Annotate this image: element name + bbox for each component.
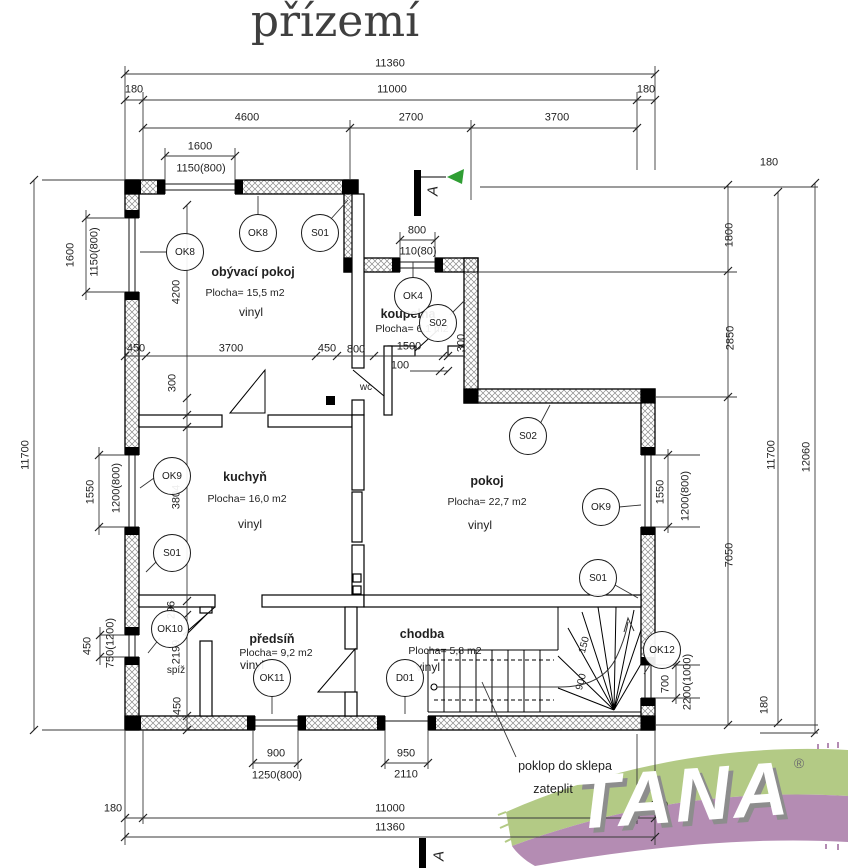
note-insulate: zateplit xyxy=(533,783,573,796)
dim-right-seg2: 2850 xyxy=(726,326,737,350)
section-arrow-icon xyxy=(447,169,464,184)
bubble-ok9-left: OK9 xyxy=(153,457,191,495)
bubble-ok10: OK10 xyxy=(151,610,189,648)
dim-top-main: 11000 xyxy=(377,85,407,96)
dim-left-total: 11700 xyxy=(21,440,32,470)
dim-left-win2: 1550 xyxy=(86,480,97,504)
room-pokoj-area: Plocha= 22,7 m2 xyxy=(447,497,526,508)
dim-left-win2b: 1200(800) xyxy=(112,463,123,513)
bubble-ok8-left: OK8 xyxy=(166,233,204,271)
dim-bottom-off-left: 180 xyxy=(104,804,122,815)
page-title: přízemí xyxy=(251,0,419,44)
dim-left-win1: 1600 xyxy=(66,243,77,267)
dim-bottom-win1: 900 xyxy=(267,749,285,760)
dim-right-seg1: 1800 xyxy=(725,223,736,247)
room-wc-name: wc xyxy=(360,383,372,393)
dim-right-win2: 700 xyxy=(661,675,672,693)
room-pokoj-floor: vinyl xyxy=(468,519,492,531)
dim-top-seg2: 2700 xyxy=(399,113,423,124)
bubble-ok11: OK11 xyxy=(253,659,291,697)
dim-right-seg3: 7050 xyxy=(725,543,736,567)
dim-living-w2: 3700 xyxy=(219,344,243,355)
bubble-s01-living: S01 xyxy=(301,214,339,252)
dim-top-win: 1600 xyxy=(188,142,212,153)
registered-mark-icon: ® xyxy=(794,755,804,771)
dim-bottom-total: 11360 xyxy=(375,823,405,834)
dim-bath-win: 800 xyxy=(408,226,426,237)
dim-right-total: 11700 xyxy=(767,440,778,470)
room-kuchyn-floor: vinyl xyxy=(238,518,262,530)
room-obyvaci-area: Plocha= 15,5 m2 xyxy=(205,288,284,299)
room-obyvaci-name: obývací pokoj xyxy=(211,266,294,279)
dim-living-w3: 450 xyxy=(318,344,336,355)
dim-bottom-main: 11000 xyxy=(375,804,405,815)
room-ob yvaci-floor: vinyl xyxy=(239,306,263,318)
dim-left-win3b: 750(1200) xyxy=(106,618,117,668)
bubble-d01: D01 xyxy=(386,659,424,697)
dim-living-w1: 450 xyxy=(127,344,145,355)
dim-bath-100: 100 xyxy=(391,361,409,372)
dim-left-win1b: 1150(800) xyxy=(90,227,101,276)
room-spiz-name: spíž xyxy=(167,666,185,676)
floorplan-page: přízemí 11360 180 11000 180 4600 2700 37… xyxy=(0,0,848,868)
dim-bath-300: 300 xyxy=(457,334,468,352)
dim-bottom-door2: 2110 xyxy=(394,770,418,781)
room-predsin-area: Plocha= 9,2 m2 xyxy=(239,648,312,659)
dim-right-off-top: 180 xyxy=(760,158,778,169)
room-kuchyn-name: kuchyň xyxy=(223,471,267,484)
dim-right-off-bottom: 180 xyxy=(760,696,771,714)
room-chodba-area: Plocha= 5,8 m2 xyxy=(408,646,481,657)
room-predsin-name: předsíň xyxy=(249,633,294,646)
bubble-ok8-top: OK8 xyxy=(239,214,277,252)
dim-bath-win2: 110(80) xyxy=(399,247,436,258)
floorplan-drawing xyxy=(0,0,848,868)
dim-pantry-450: 450 xyxy=(173,697,184,715)
dim-right-total2: 12060 xyxy=(802,442,813,473)
dim-right-win2b: 2200(1000) xyxy=(683,654,694,710)
dim-top-seg1: 4600 xyxy=(235,113,259,124)
bubble-s01-kuchyn: S01 xyxy=(153,534,191,572)
dim-bath-1500: 1500 xyxy=(397,342,421,353)
dim-right-win1b: 1200(800) xyxy=(681,471,692,521)
dim-right-win1: 1550 xyxy=(656,480,667,504)
bubble-s02-koupelna: S02 xyxy=(419,304,457,342)
room-pokoj-name: pokoj xyxy=(470,475,503,488)
room-chodba-name: chodba xyxy=(400,628,444,641)
dim-top-off-right: 180 xyxy=(637,85,655,96)
bubble-ok9-right: OK9 xyxy=(582,488,620,526)
bubble-s01-pokoj: S01 xyxy=(579,559,617,597)
dim-top-off-left: 180 xyxy=(125,85,143,96)
bubble-s02-pokoj: S02 xyxy=(509,417,547,455)
dim-top-seg3: 3700 xyxy=(545,113,569,124)
section-letter-bottom: A xyxy=(432,851,447,861)
dim-top-win2: 1150(800) xyxy=(176,164,225,175)
section-letter-top: A xyxy=(426,186,441,196)
dim-bottom-door: 950 xyxy=(397,749,415,760)
dim-top-total: 11360 xyxy=(375,59,405,70)
dim-bottom-win1b: 1250(800) xyxy=(252,771,302,782)
dim-living-height: 4200 xyxy=(172,280,183,304)
room-kuchyn-area: Plocha= 16,0 m2 xyxy=(207,494,286,505)
tana-logo: TANA xyxy=(571,745,794,847)
dim-left-win3: 450 xyxy=(83,637,94,655)
bubble-ok12: OK12 xyxy=(643,631,681,669)
dim-wall-300: 300 xyxy=(168,374,179,392)
dim-bath-800: 800 xyxy=(347,345,365,356)
stairs xyxy=(428,607,641,712)
